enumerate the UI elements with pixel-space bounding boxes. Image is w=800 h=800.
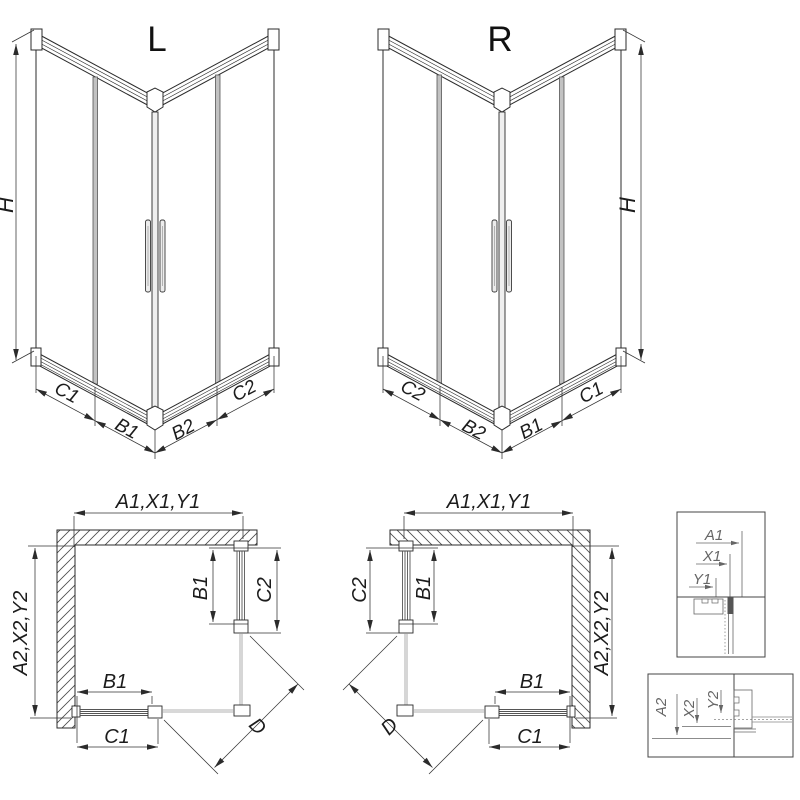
dim-label-b1-door-plan-left: B1 xyxy=(190,576,212,600)
detail-label-a2: A2 xyxy=(653,697,670,717)
dim-label-a1x1y1-plan-right: A1,X1,Y1 xyxy=(446,491,532,513)
detail-label-a1: A1 xyxy=(704,527,723,544)
dim-label-b1-bottom-plan-right: B1 xyxy=(520,671,544,693)
dim-label-b1-bottom-plan-left: B1 xyxy=(103,671,127,693)
dim-label-c2-door-plan-right: C2 xyxy=(349,577,371,603)
dim-label-a2x2y2-plan-left: A2,X2,Y2 xyxy=(10,591,32,677)
detail-label-y1: Y1 xyxy=(693,571,711,588)
detail-label-y2: Y2 xyxy=(705,690,722,709)
iso-right-title: R xyxy=(487,20,512,59)
dim-label-c1-bottom-plan-right: C1 xyxy=(517,726,543,748)
labels: L R H H C1 B1 B2 C2 C2 B2 B1 C1 A1,X1,Y1… xyxy=(0,20,723,748)
dim-label-c1-bottom-plan-left: C1 xyxy=(104,726,130,748)
dim-label-a2x2y2-plan-right: A2,X2,Y2 xyxy=(591,591,613,677)
dim-label-b2-iso-left: B2 xyxy=(168,415,199,445)
plan-view-left-lines xyxy=(28,513,304,774)
plan-view-right-lines xyxy=(343,513,619,774)
dim-label-height-right: H xyxy=(615,197,640,213)
dim-label-b2-iso-right: B2 xyxy=(458,415,489,445)
dim-label-b1-door-plan-right: B1 xyxy=(413,576,435,600)
dim-label-c2-door-plan-left: C2 xyxy=(254,577,276,603)
detail-label-x1: X1 xyxy=(702,548,721,565)
dim-label-d-plan-left: D xyxy=(244,714,270,740)
dim-label-b1-iso-right: B1 xyxy=(516,414,546,443)
dim-label-height-left: H xyxy=(0,197,18,213)
technical-drawing-sheet: L R H H C1 B1 B2 C2 C2 B2 B1 C1 A1,X1,Y1… xyxy=(0,0,800,800)
detail-label-x2: X2 xyxy=(681,699,698,719)
dim-label-a1x1y1-plan-left: A1,X1,Y1 xyxy=(115,491,201,513)
drawing-svg: L R H H C1 B1 B2 C2 C2 B2 B1 C1 A1,X1,Y1… xyxy=(0,0,800,800)
dim-label-d-plan-right: D xyxy=(377,714,403,740)
iso-left-title: L xyxy=(147,20,166,59)
